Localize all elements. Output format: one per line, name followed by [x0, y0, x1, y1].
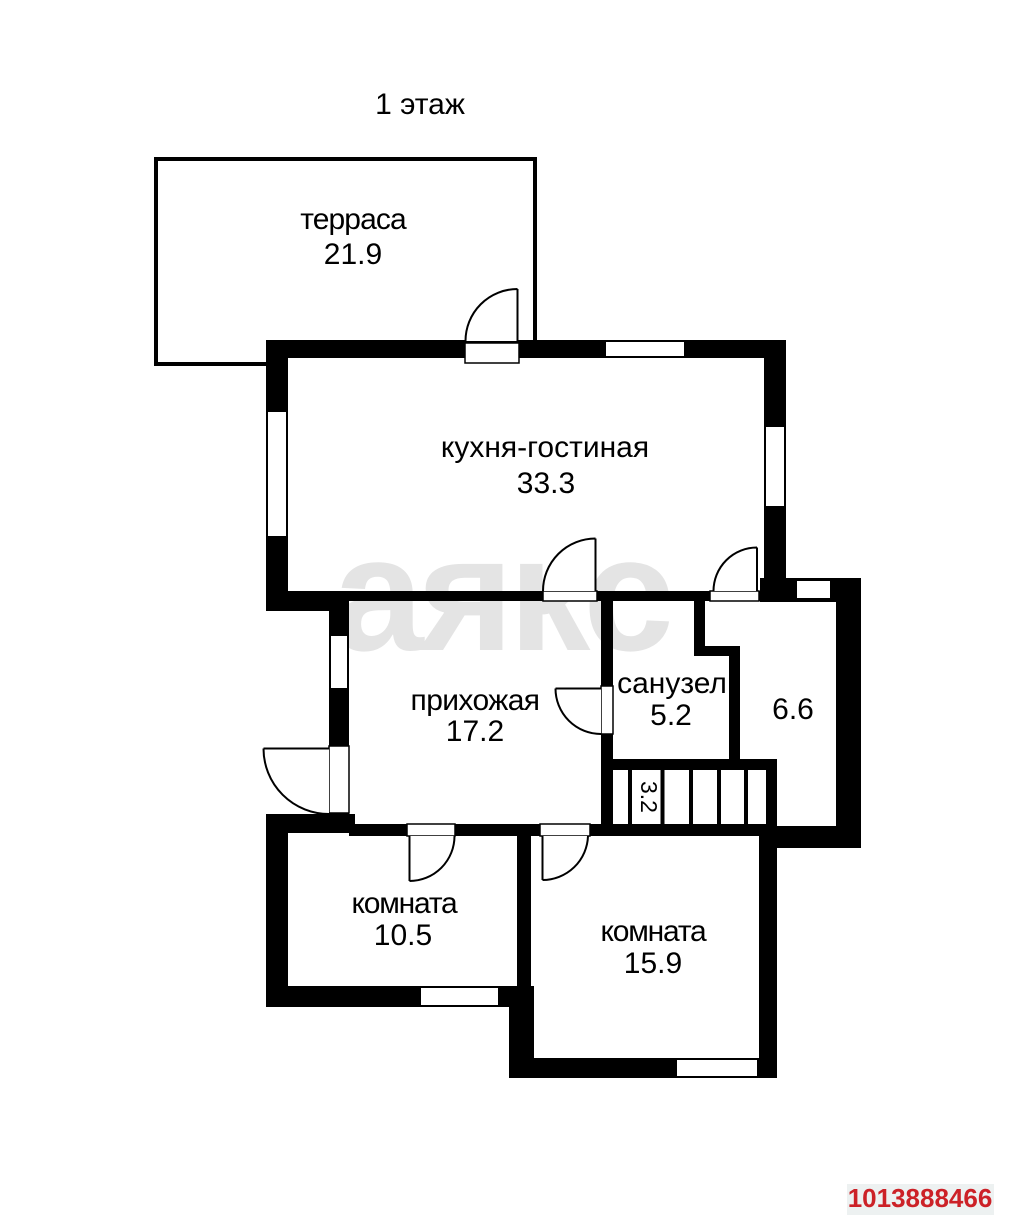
- svg-text:прихожая: прихожая: [411, 684, 540, 717]
- svg-text:1013888466: 1013888466: [848, 1183, 993, 1213]
- svg-text:3.2: 3.2: [636, 781, 662, 813]
- svg-text:комната: комната: [600, 915, 707, 948]
- svg-text:санузел: санузел: [617, 667, 727, 700]
- svg-text:17.2: 17.2: [446, 715, 504, 748]
- svg-text:1 этаж: 1 этаж: [375, 88, 465, 121]
- svg-text:кухня-гостиная: кухня-гостиная: [441, 431, 649, 464]
- svg-text:6.6: 6.6: [772, 693, 814, 726]
- svg-text:комната: комната: [351, 887, 458, 920]
- svg-text:15.9: 15.9: [624, 947, 682, 980]
- svg-text:21.9: 21.9: [324, 238, 382, 271]
- svg-text:терраса: терраса: [300, 203, 407, 236]
- svg-text:5.2: 5.2: [650, 699, 692, 732]
- svg-text:33.3: 33.3: [517, 467, 575, 500]
- svg-text:10.5: 10.5: [374, 919, 432, 952]
